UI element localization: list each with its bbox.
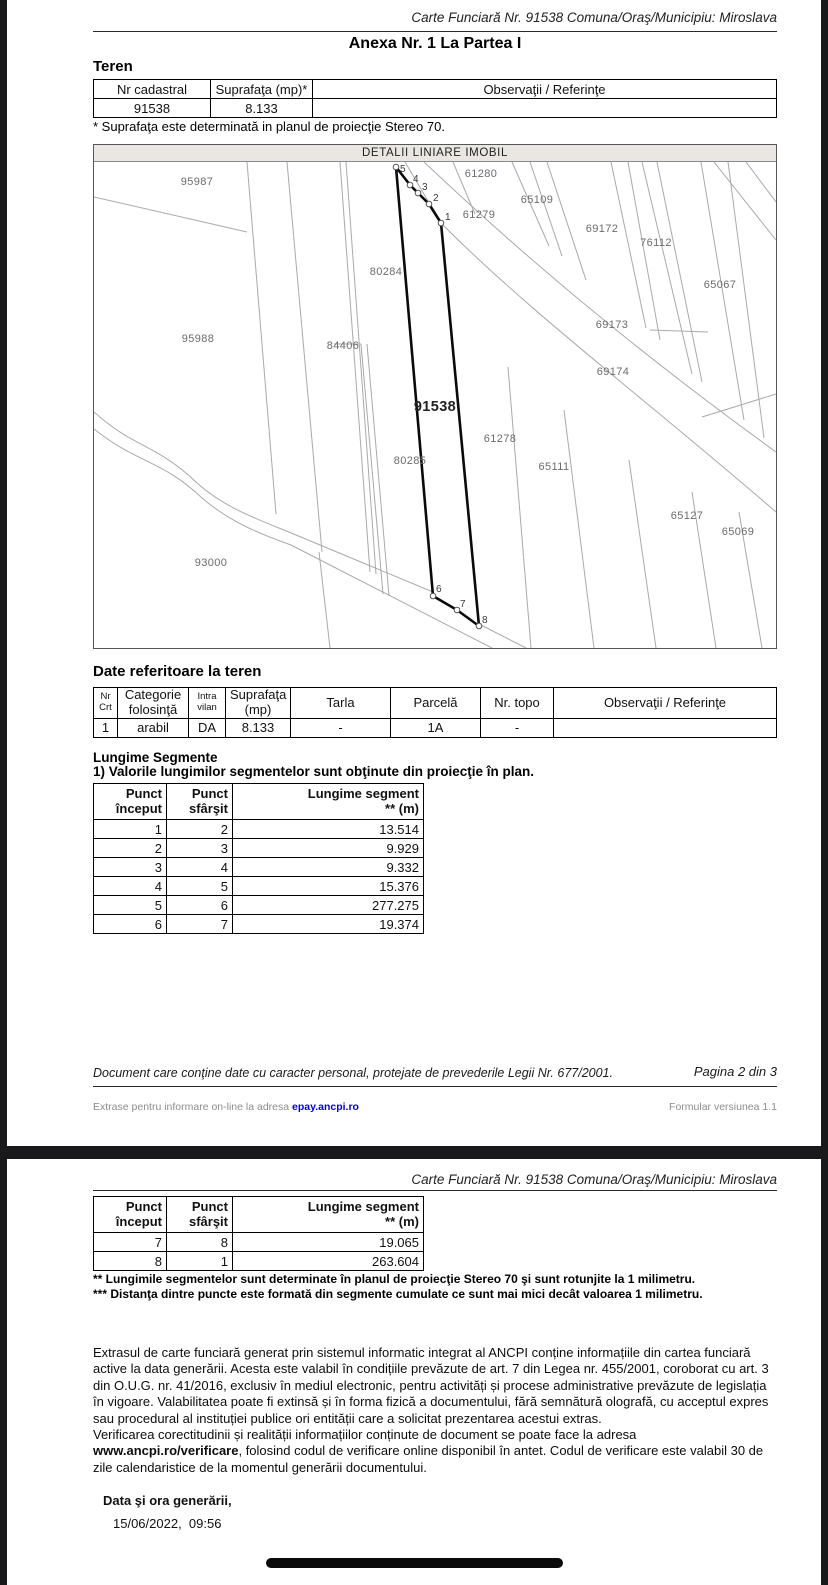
generation-date-value: 15/06/2022, 09:56 xyxy=(113,1516,221,1531)
segment-row: 3 4 9.332 xyxy=(94,858,424,877)
header-line: Punct xyxy=(98,787,162,802)
segment-cell: 9.332 xyxy=(233,858,424,877)
segment-cell: 2 xyxy=(167,820,233,839)
teren-cell-nr-cadastral: 91538 xyxy=(94,99,211,118)
date-header-nr-crt: Nr Crt xyxy=(94,688,118,719)
segments-header-row: Punct început Punct sfârşit Lungime segm… xyxy=(94,784,424,820)
legal-paragraph-2: Verificarea corectitudinii și realității… xyxy=(93,1427,777,1476)
parcel-label: 65109 xyxy=(521,194,554,206)
segment-row: 4 5 15.376 xyxy=(94,877,424,896)
segment-cell: 6 xyxy=(94,915,167,934)
date-header-parcela: Parcelă xyxy=(391,688,481,719)
parcel-label: 93000 xyxy=(195,557,228,569)
segment-cell: 3 xyxy=(167,839,233,858)
header-line: Punct xyxy=(171,1200,228,1215)
segments-heading: Lungime Segmente xyxy=(93,750,218,765)
date-header-observatii: Observaţii / Referinţe xyxy=(554,688,777,719)
segments-header-start: Punct început xyxy=(94,784,167,820)
segment-cell: 19.065 xyxy=(233,1233,424,1252)
page-header-title: Carte Funciară Nr. 91538 Comuna/Oraş/Mun… xyxy=(411,1172,777,1187)
segment-cell: 8 xyxy=(94,1252,167,1271)
segment-cell: 15.376 xyxy=(233,877,424,896)
parcel-label: 69173 xyxy=(596,319,629,331)
date-teren-table: Nr Crt Categorie folosinţă Intra vilan S… xyxy=(93,687,777,738)
teren-header-cell: Suprafaţa (mp)* xyxy=(211,80,313,99)
date-header-nr-topo: Nr. topo xyxy=(481,688,554,719)
privacy-notice: Document care conţine date cu caracter p… xyxy=(93,1066,613,1080)
form-version: Formular versiunea 1.1 xyxy=(669,1101,777,1113)
segments-table: Punct început Punct sfârşit Lungime segm… xyxy=(93,783,424,934)
parcel-91538-outline xyxy=(396,167,479,626)
cadastral-map-drawing: 1 2 3 4 5 6 7 8 95987 61280 65109 61279 … xyxy=(94,162,776,648)
parcel-label: 61278 xyxy=(484,433,517,445)
date-teren-header-row: Nr Crt Categorie folosinţă Intra vilan S… xyxy=(94,688,777,719)
segments-header-end: Punct sfârşit xyxy=(167,784,233,820)
segment-row: 2 3 9.929 xyxy=(94,839,424,858)
parcel-label: 95987 xyxy=(181,176,214,188)
segment-cell: 19.374 xyxy=(233,915,424,934)
teren-header-cell: Observaţii / Referinţe xyxy=(313,80,777,99)
header-line: folosinţă xyxy=(122,703,184,718)
parcel-label: 65127 xyxy=(671,510,704,522)
ancpi-verificare-link: www.ancpi.ro/verificare xyxy=(93,1443,238,1458)
header-divider xyxy=(93,1190,777,1191)
segments-header-row: Punct început Punct sfârşit Lungime segm… xyxy=(94,1197,424,1233)
epay-ancpi-link[interactable]: epay.ancpi.ro xyxy=(292,1101,359,1113)
teren-footnote: * Suprafaţa este determinată in planul d… xyxy=(93,119,445,134)
extract-info: Extrase pentru informare on-line la adre… xyxy=(93,1101,359,1113)
segment-cell: 3 xyxy=(94,858,167,877)
footer-divider xyxy=(93,1086,777,1087)
vertex-label: 4 xyxy=(413,174,419,185)
segments-header-length: Lungime segment ** (m) xyxy=(233,1197,424,1233)
annex-title: Anexa Nr. 1 La Partea I xyxy=(93,35,777,53)
segments-header-length: Lungime segment ** (m) xyxy=(233,784,424,820)
header-line: sfârşit xyxy=(171,1215,228,1230)
segment-cell: 8 xyxy=(167,1233,233,1252)
header-line: ** (m) xyxy=(237,802,419,817)
date-cell: - xyxy=(291,718,391,737)
redacted-bar xyxy=(266,1558,563,1568)
segment-cell: 4 xyxy=(167,858,233,877)
generation-date-label: Data şi ora generării, xyxy=(103,1493,232,1508)
vertex-label: 2 xyxy=(433,193,439,204)
segments-header-start: Punct început xyxy=(94,1197,167,1233)
date-header-intravilan: Intra vilan xyxy=(189,688,226,719)
teren-header-cell: Nr cadastral xyxy=(94,80,211,99)
teren-table: Nr cadastral Suprafaţa (mp)* Observaţii … xyxy=(93,79,777,118)
parcel-label: 76112 xyxy=(640,237,672,249)
date-cell xyxy=(554,718,777,737)
segment-cell: 9.929 xyxy=(233,839,424,858)
date-teren-data-row: 1 arabil DA 8.133 - 1A - xyxy=(94,718,777,737)
parcel-label: 84406 xyxy=(327,340,360,352)
segments-table-continued: Punct început Punct sfârşit Lungime segm… xyxy=(93,1196,424,1271)
header-line: Punct xyxy=(98,1200,162,1215)
teren-heading: Teren xyxy=(93,58,133,75)
segment-row: 7 8 19.065 xyxy=(94,1233,424,1252)
parcel-label: 69174 xyxy=(597,366,630,378)
segment-row: 8 1 263.604 xyxy=(94,1252,424,1271)
segment-cell: 277.275 xyxy=(233,896,424,915)
parcel-label: 61279 xyxy=(463,209,496,221)
map-title-band: DETALII LINIARE IMOBIL xyxy=(94,145,776,162)
segment-cell: 263.604 xyxy=(233,1252,424,1271)
document-page-2: Carte Funciară Nr. 91538 Comuna/Oraş/Mun… xyxy=(7,0,821,1146)
segment-cell: 1 xyxy=(167,1252,233,1271)
vertex-label: 6 xyxy=(436,584,442,595)
date-cell: 1 xyxy=(94,718,118,737)
parcel-label-subject: 91538 xyxy=(414,399,456,415)
segments-note: 1) Valorile lungimilor segmentelor sunt … xyxy=(93,764,534,779)
segment-cell: 13.514 xyxy=(233,820,424,839)
date-header-tarla: Tarla xyxy=(291,688,391,719)
header-line: început xyxy=(98,1215,162,1230)
header-divider xyxy=(93,31,777,32)
parcel-label: 69172 xyxy=(586,223,619,235)
page-number: Pagina 2 din 3 xyxy=(694,1064,777,1079)
header-line: Lungime segment xyxy=(237,787,419,802)
legal-paragraph-2-prefix: Verificarea corectitudinii și realității… xyxy=(93,1427,636,1442)
segment-cell: 7 xyxy=(167,915,233,934)
parcel-label: 65111 xyxy=(539,461,570,473)
parcel-label: 61280 xyxy=(465,168,498,180)
legal-text: Extrasul de carte funciară generat prin … xyxy=(93,1345,777,1476)
header-line: Punct xyxy=(171,787,228,802)
header-line: Lungime segment xyxy=(237,1200,419,1215)
date-teren-heading: Date referitoare la teren xyxy=(93,663,261,680)
segment-cell: 5 xyxy=(167,877,233,896)
date-cell: arabil xyxy=(118,718,189,737)
parcel-label: 95988 xyxy=(182,333,215,345)
header-line: început xyxy=(98,802,162,817)
segment-row: 5 6 277.275 xyxy=(94,896,424,915)
vertex-label: 8 xyxy=(482,615,488,626)
date-cell: 8.133 xyxy=(226,718,291,737)
date-cell: 1A xyxy=(391,718,481,737)
segments-header-end: Punct sfârşit xyxy=(167,1197,233,1233)
header-line: sfârşit xyxy=(171,802,228,817)
segment-cell: 2 xyxy=(94,839,167,858)
vertex-label: 5 xyxy=(400,164,406,175)
segment-cell: 7 xyxy=(94,1233,167,1252)
vertex-label: 7 xyxy=(460,599,466,610)
segment-cell: 5 xyxy=(94,896,167,915)
teren-cell-suprafata: 8.133 xyxy=(211,99,313,118)
date-cell: DA xyxy=(189,718,226,737)
header-line: vilan xyxy=(193,703,221,714)
teren-table-header-row: Nr cadastral Suprafaţa (mp)* Observaţii … xyxy=(94,80,777,99)
cadastral-map: DETALII LINIARE IMOBIL xyxy=(93,144,777,649)
segment-cell: 1 xyxy=(94,820,167,839)
date-header-suprafata: Suprafaţa (mp) xyxy=(226,688,291,719)
date-cell: - xyxy=(481,718,554,737)
legal-paragraph-1: Extrasul de carte funciară generat prin … xyxy=(93,1345,777,1427)
date-header-categorie: Categorie folosinţă xyxy=(118,688,189,719)
teren-table-data-row: 91538 8.133 xyxy=(94,99,777,118)
document-page-3: Carte Funciară Nr. 91538 Comuna/Oraş/Mun… xyxy=(7,1159,821,1585)
header-line: (mp) xyxy=(230,703,286,718)
segment-cell: 4 xyxy=(94,877,167,896)
vertex-label: 3 xyxy=(422,182,428,193)
extract-info-text: Extrase pentru informare on-line la adre… xyxy=(93,1101,292,1113)
vertex-label: 1 xyxy=(445,212,451,223)
vertex-markers xyxy=(393,164,482,629)
header-line: Categorie xyxy=(122,688,184,703)
page-header-title: Carte Funciară Nr. 91538 Comuna/Oraş/Mun… xyxy=(411,10,777,25)
footnote-distance: *** Distanţa dintre puncte este formată … xyxy=(93,1287,703,1301)
parcel-label: 80285 xyxy=(394,455,427,467)
segment-row: 1 2 13.514 xyxy=(94,820,424,839)
segment-row: 6 7 19.374 xyxy=(94,915,424,934)
header-line: ** (m) xyxy=(237,1215,419,1230)
parcel-label: 65069 xyxy=(722,526,755,538)
header-line: Crt xyxy=(98,703,113,714)
parcel-label: 80284 xyxy=(370,266,403,278)
teren-cell-observatii xyxy=(313,99,777,118)
header-line: Suprafaţa xyxy=(230,688,286,703)
segment-cell: 6 xyxy=(167,896,233,915)
footnote-stereo70: ** Lungimile segmentelor sunt determinat… xyxy=(93,1272,695,1286)
parcel-label: 65067 xyxy=(704,279,737,291)
pdf-viewer: Carte Funciară Nr. 91538 Comuna/Oraş/Mun… xyxy=(0,0,828,1585)
